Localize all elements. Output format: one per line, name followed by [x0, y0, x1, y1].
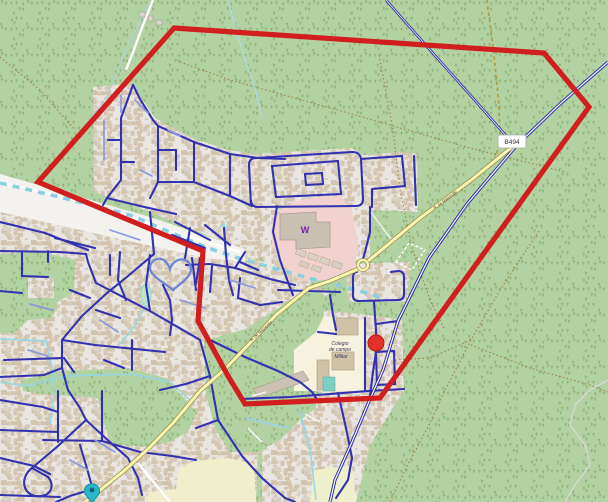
svg-text:Militar: Militar [334, 354, 348, 360]
svg-text:W: W [301, 225, 310, 235]
svg-text:B494: B494 [504, 139, 520, 146]
svg-text:de campo: de campo [329, 347, 351, 353]
